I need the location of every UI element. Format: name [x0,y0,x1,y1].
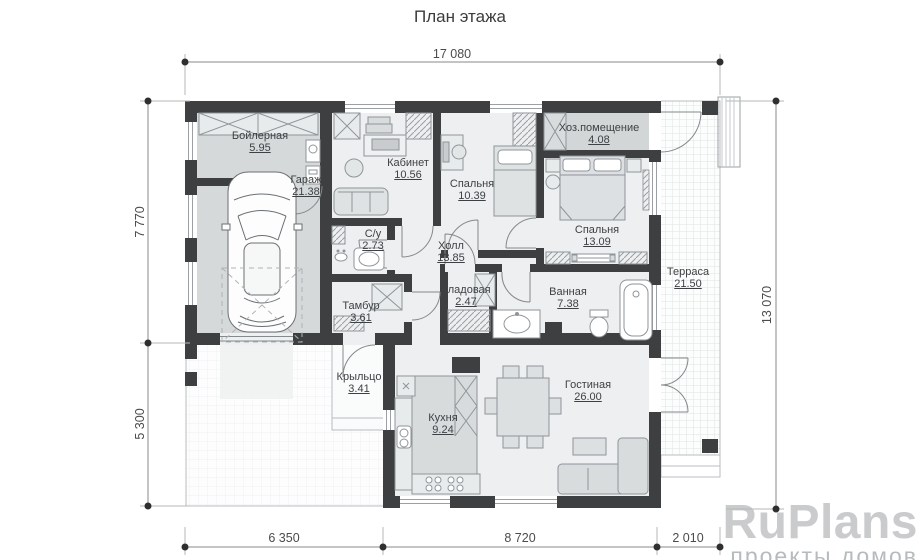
room-label-living: Гостиная26.00 [565,379,611,403]
dim-bottom-right: 2 010 [672,531,703,545]
floor-plan-page: RuPlans проекты домов [0,0,920,560]
radiator [643,170,649,210]
room-label-bedroom2: Спальня13.09 [575,224,619,248]
vent-shaft [545,322,562,338]
window [185,195,197,238]
window [345,101,395,113]
window [185,122,197,160]
kitchen-cabinet [397,376,415,396]
bath-sink [493,310,540,338]
bedroom2-nightstand [627,159,641,172]
coffee-table [573,438,606,455]
window [400,496,450,508]
bedroom2-bed [560,156,625,220]
room-label-terrace: Терраса21.50 [667,266,709,290]
window [185,262,197,305]
room-label-pantry: Кладовая2.47 [441,284,490,308]
room-label-boiler: Бойлерная5.95 [232,130,288,154]
window [383,410,395,430]
office-shelf [406,113,431,139]
window [649,162,661,215]
room-label-hall: Холл13.85 [437,240,465,264]
room-label-vestibule: Тамбур3.61 [342,300,379,324]
pantry-shelves [448,310,490,331]
dim-total-width: 17 080 [433,47,471,61]
kitchen-counter [395,398,412,490]
office-sofa [334,188,388,215]
dim-bottom-left: 6 350 [268,531,299,545]
wc-vent [332,226,345,244]
bedroom2-radiator [572,254,615,262]
bedroom2-closet [546,252,570,264]
window [495,496,557,508]
room-label-bathroom: Ванная7.38 [549,286,587,310]
bedroom2-closet [619,252,647,264]
room-label-garage: Гараж21.38 [290,174,321,198]
bedroom1-desk [441,135,466,170]
room-label-wc: С/у2.73 [362,228,383,252]
dim-right-total: 13 070 [760,286,774,324]
bathtub-icon [620,280,652,340]
canopy-outline [718,97,740,167]
office-wardrobe [334,113,360,139]
printer-icon [366,117,392,133]
dim-left-upper: 7 770 [133,206,147,237]
page-title: План этажа [0,7,920,27]
terrace-post [702,439,718,453]
window [490,101,542,113]
room-label-utility: Хоз.помещение4.08 [559,122,639,146]
stove-icon [412,474,480,494]
toilet-icon [590,310,608,337]
bedroom1-bed [494,146,536,216]
room-label-porch: Крыльцо3.41 [337,371,382,395]
floor-plan-drawing [0,0,920,560]
terrace-post [702,101,718,115]
dim-left-lower: 5 300 [133,408,147,439]
dim-bottom-mid: 8 720 [504,531,535,545]
room-label-bedroom1: Спальня10.39 [450,178,494,202]
room-label-kitchen: Кухня9.24 [428,412,457,436]
room-label-office: Кабинет10.56 [387,157,429,181]
